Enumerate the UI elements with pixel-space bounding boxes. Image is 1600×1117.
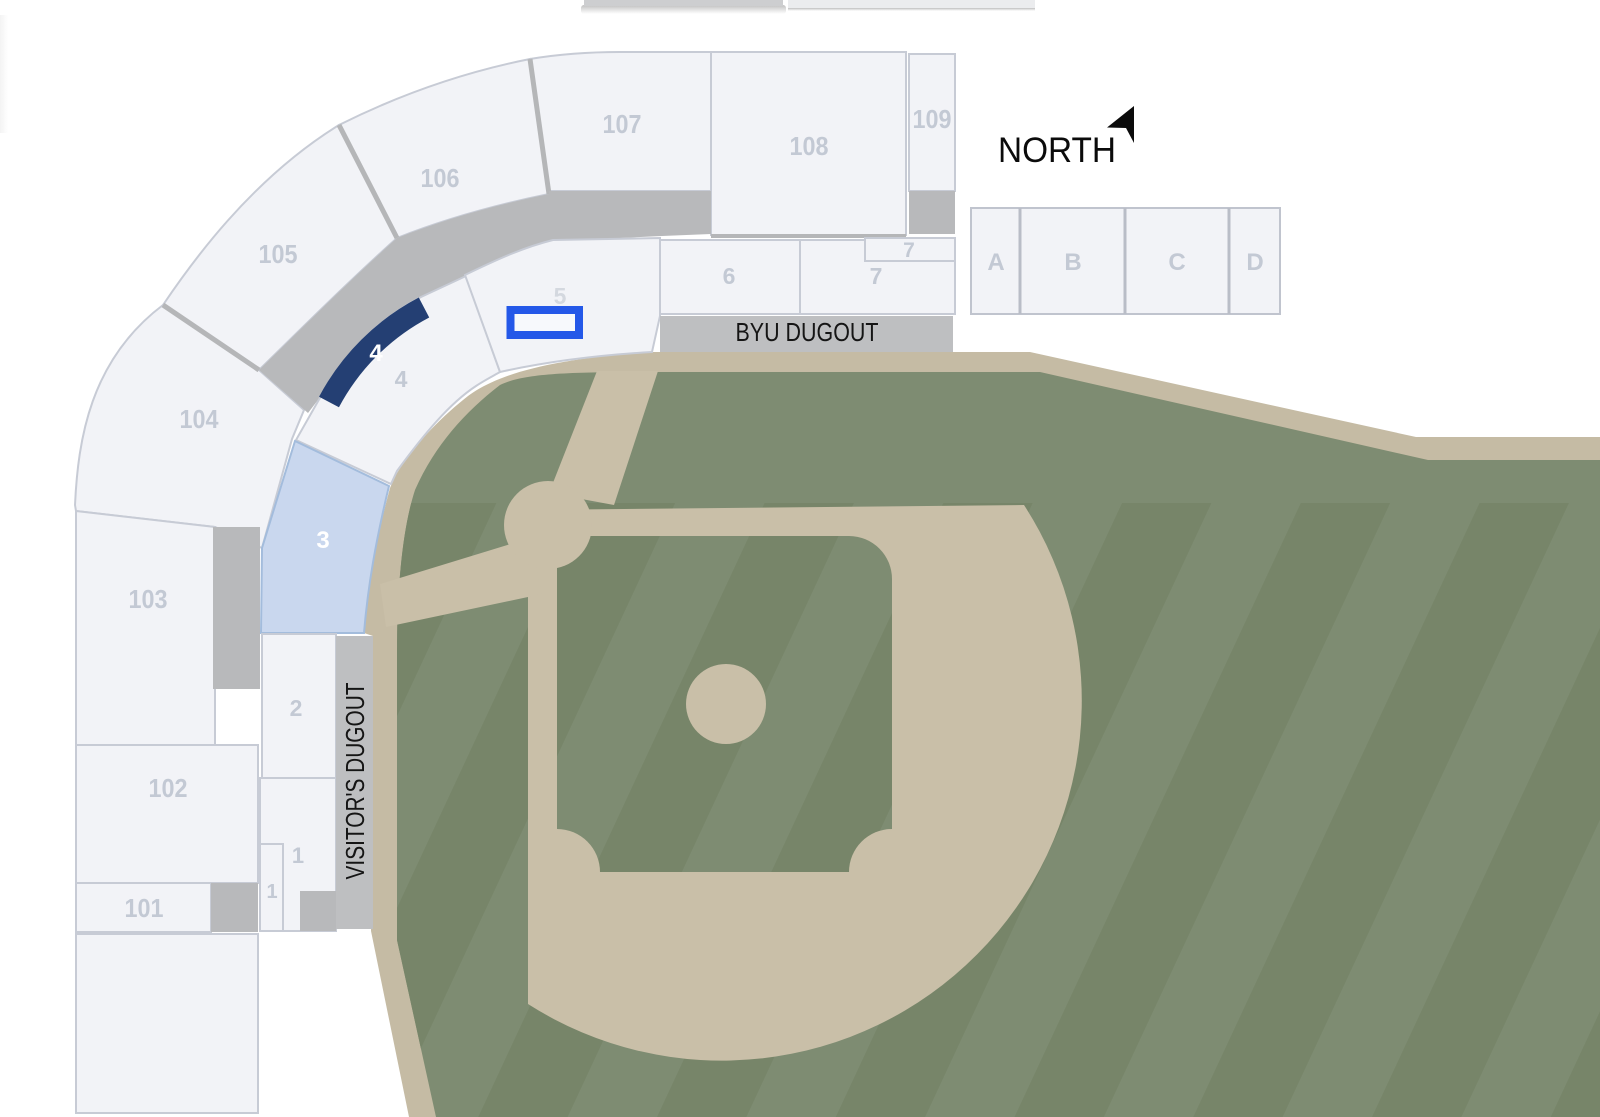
svg-text:1: 1: [266, 881, 277, 903]
svg-text:4: 4: [395, 366, 408, 392]
svg-text:102: 102: [149, 773, 188, 803]
svg-text:BYU DUGOUT: BYU DUGOUT: [736, 317, 879, 347]
svg-text:A: A: [987, 249, 1004, 276]
svg-text:1: 1: [292, 843, 304, 868]
svg-text:NORTH: NORTH: [998, 131, 1116, 170]
svg-text:C: C: [1168, 249, 1185, 276]
svg-text:D: D: [1246, 249, 1263, 276]
svg-text:B: B: [1064, 249, 1081, 276]
svg-text:5: 5: [554, 283, 567, 309]
svg-text:2: 2: [290, 695, 303, 721]
svg-text:VISITOR'S DUGOUT: VISITOR'S DUGOUT: [340, 682, 370, 879]
svg-text:105: 105: [259, 239, 298, 269]
svg-text:108: 108: [790, 131, 829, 161]
svg-text:109: 109: [913, 104, 952, 134]
svg-text:106: 106: [421, 163, 460, 193]
svg-text:4: 4: [369, 340, 383, 367]
svg-text:7: 7: [903, 239, 915, 262]
svg-text:3: 3: [316, 527, 329, 554]
svg-text:107: 107: [603, 109, 642, 139]
svg-text:101: 101: [125, 893, 164, 923]
svg-text:104: 104: [180, 404, 219, 434]
svg-text:6: 6: [723, 263, 736, 289]
svg-text:103: 103: [129, 584, 168, 614]
svg-text:7: 7: [870, 263, 883, 289]
